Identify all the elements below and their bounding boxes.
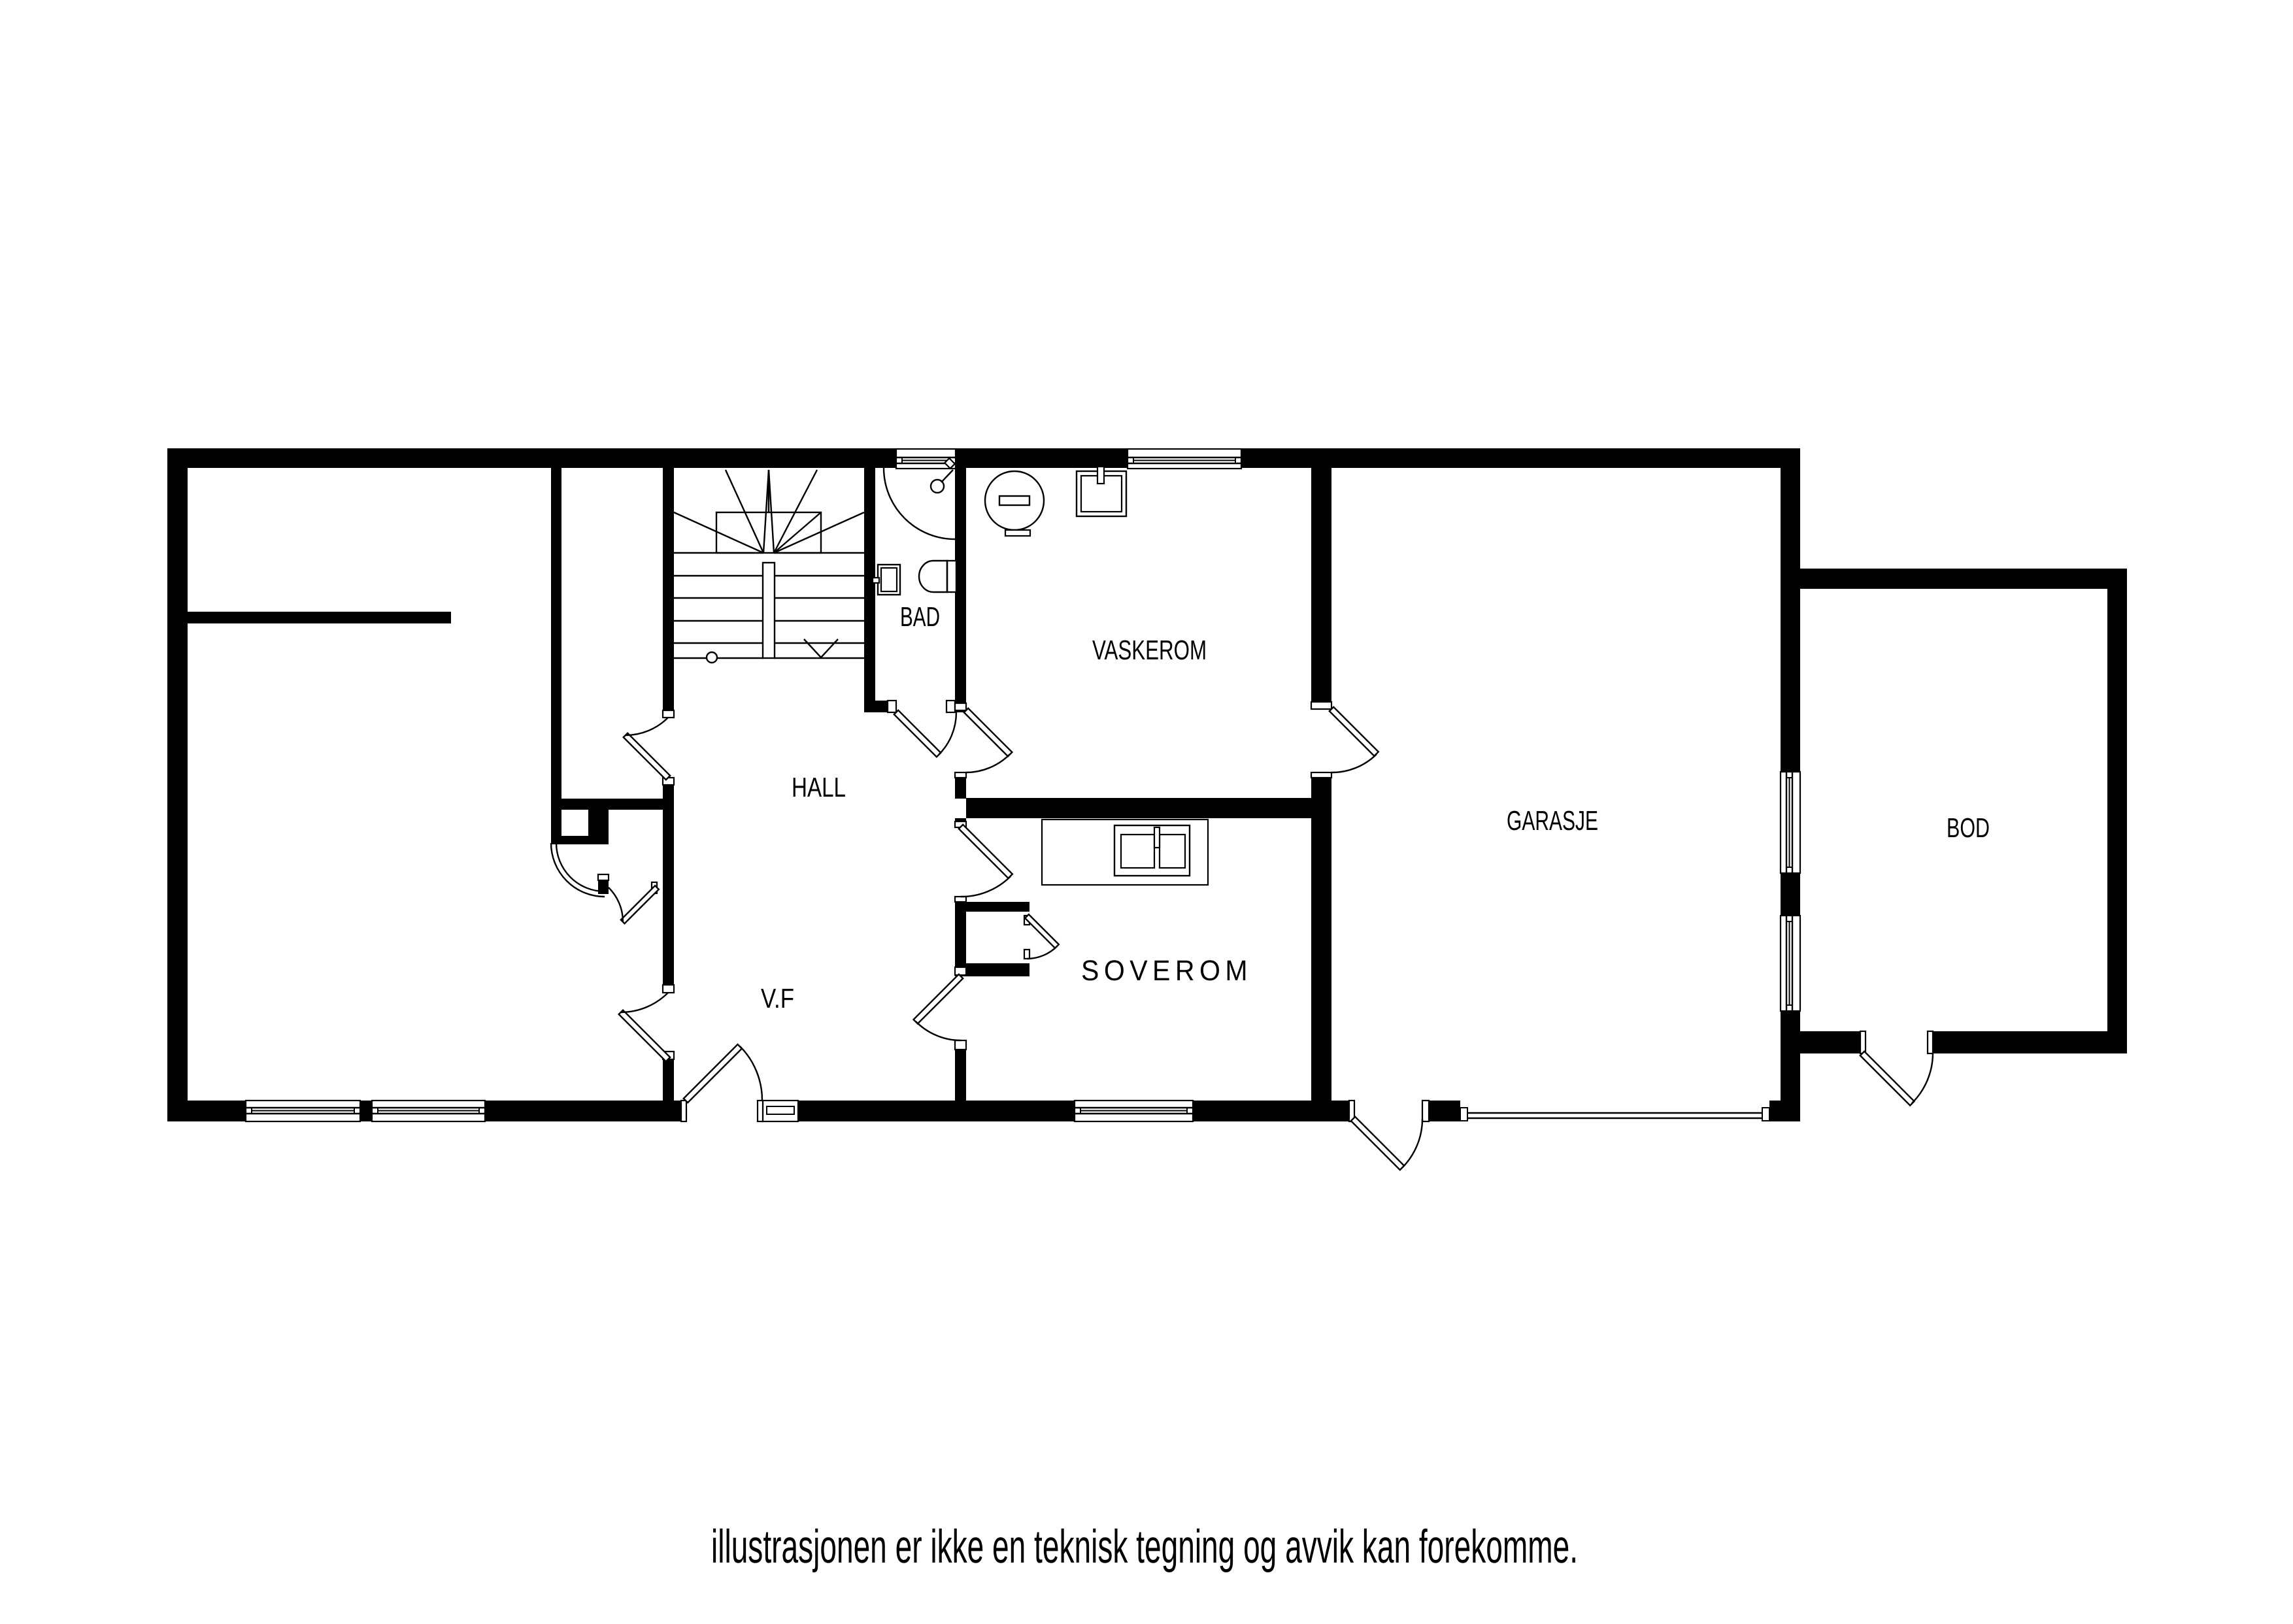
svg-text:VASKEROM: VASKEROM — [1092, 635, 1207, 665]
svg-text:GARASJE: GARASJE — [1507, 805, 1598, 836]
svg-text:V.F: V.F — [761, 983, 794, 1014]
svg-text:HALL: HALL — [792, 772, 846, 803]
svg-text:illustrasjonen er ikke en tekn: illustrasjonen er ikke en teknisk tegnin… — [711, 1521, 1578, 1573]
svg-text:BAD: BAD — [900, 601, 940, 632]
svg-text:SOVEROM: SOVEROM — [1081, 955, 1252, 987]
svg-text:BOD: BOD — [1947, 812, 1990, 843]
